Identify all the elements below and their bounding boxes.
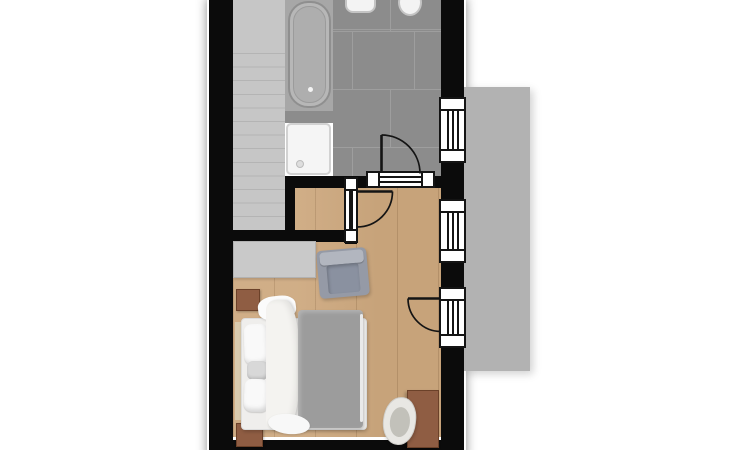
bedroom-window [439, 199, 466, 263]
armchair-seat [326, 263, 360, 295]
bathtub-drain [308, 87, 313, 92]
window-jamb [441, 99, 464, 111]
terrace-door-frame [439, 287, 466, 348]
tile-joint [352, 147, 353, 176]
double-bed [234, 298, 368, 432]
window-jamb [441, 334, 464, 346]
shower-drain [296, 160, 304, 168]
bathtub [288, 1, 331, 108]
window-jamb [441, 149, 464, 161]
floor-plan-canvas [0, 0, 730, 450]
bathroom-tile-floor [333, 0, 441, 176]
bathroom-door-frame [366, 171, 435, 188]
window-glazing [447, 111, 459, 149]
window-glazing [447, 213, 459, 249]
door-jamb [346, 179, 356, 191]
bedroom-door-frame [344, 177, 358, 243]
tile-joint [390, 0, 391, 31]
wall-left [209, 0, 233, 450]
bed-sheet [266, 300, 300, 430]
wall-landing-left [285, 176, 295, 242]
bathroom-tile-strip [285, 111, 333, 123]
door-jamb [421, 173, 433, 186]
bed-cushion [247, 361, 268, 380]
door-threshold [380, 176, 421, 183]
door-jamb [346, 229, 356, 241]
bed-duvet-edge [360, 314, 363, 422]
terrace-slab [464, 87, 530, 371]
desk-chair-seat [388, 406, 411, 438]
bathroom-window [439, 97, 466, 163]
staircase-steps [233, 53, 285, 230]
tile-joint [352, 31, 353, 89]
washbasin [345, 0, 376, 13]
shower-tray [286, 123, 331, 175]
door-jamb [368, 173, 380, 186]
tile-joint [390, 89, 391, 147]
tile-joint [414, 31, 415, 89]
door-threshold [349, 191, 353, 229]
window-jamb [441, 289, 464, 301]
window-glazing [447, 301, 459, 334]
dresser [233, 241, 316, 278]
bed-duvet [298, 310, 363, 428]
window-jamb [441, 201, 464, 213]
armchair [316, 247, 370, 299]
window-jamb [441, 249, 464, 261]
